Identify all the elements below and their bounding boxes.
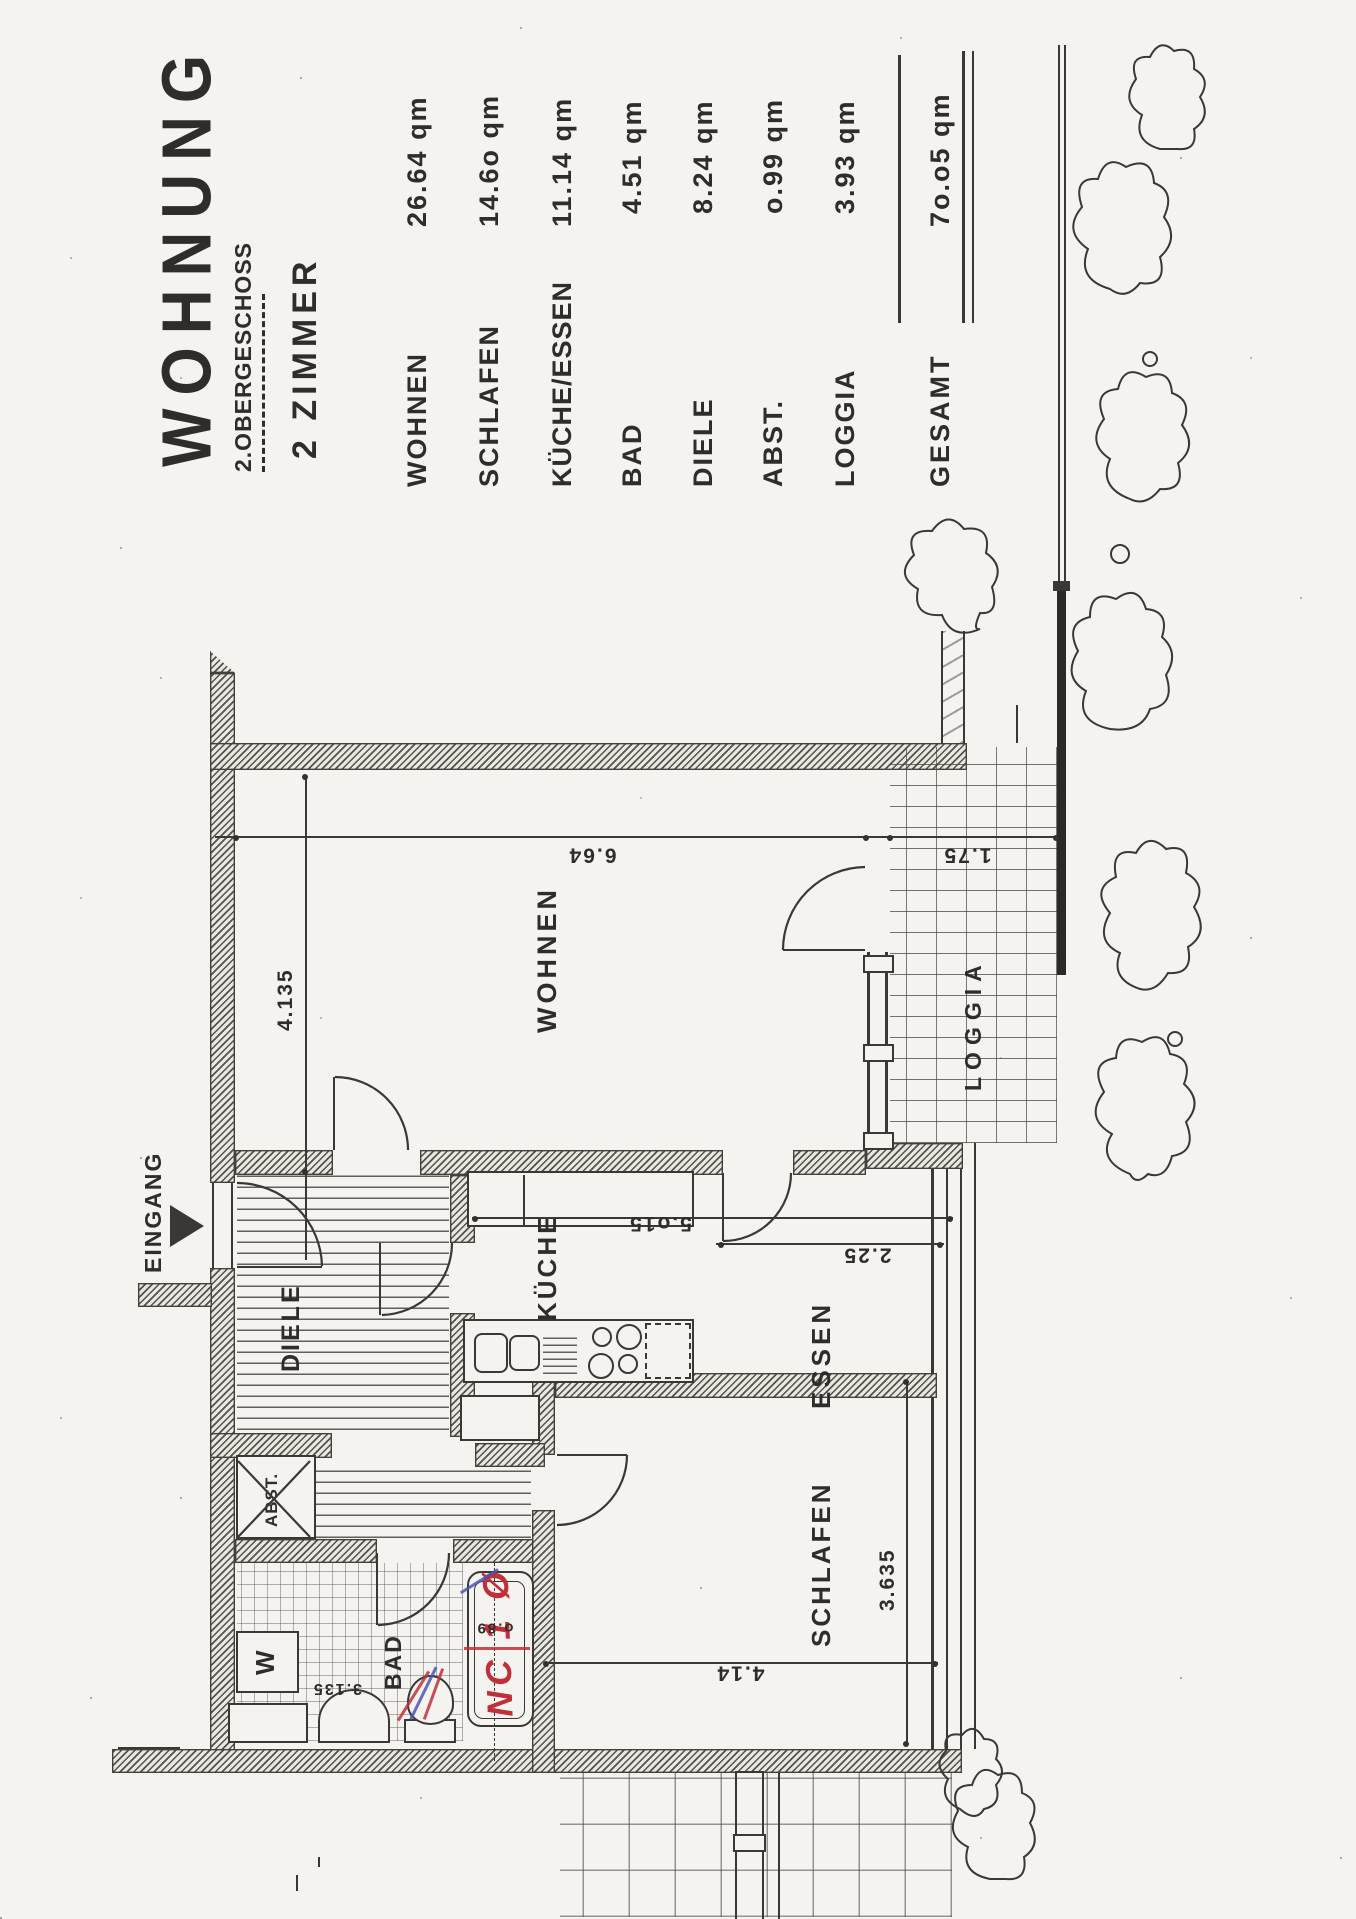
door-arc-schlafen [557,1455,627,1525]
door-arc-wohnen-essen [723,1173,791,1241]
garden-plants-drawing [905,45,1205,1879]
door-arc-wohnen-diele [335,1077,408,1150]
plan-linework [0,0,1356,1919]
door-arc-entry [237,1183,322,1266]
door-arc-kueche [382,1243,452,1315]
door-arc-bad [378,1553,449,1625]
scanned-floorplan-page: WOHNUNG 2.OBERGESCHOSS 2 ZIMMER WOHNEN 2… [0,0,1356,1919]
landscape-drawing: WOHNUNG 2.OBERGESCHOSS 2 ZIMMER WOHNEN 2… [0,0,1356,1919]
door-arc-loggia [783,867,865,950]
